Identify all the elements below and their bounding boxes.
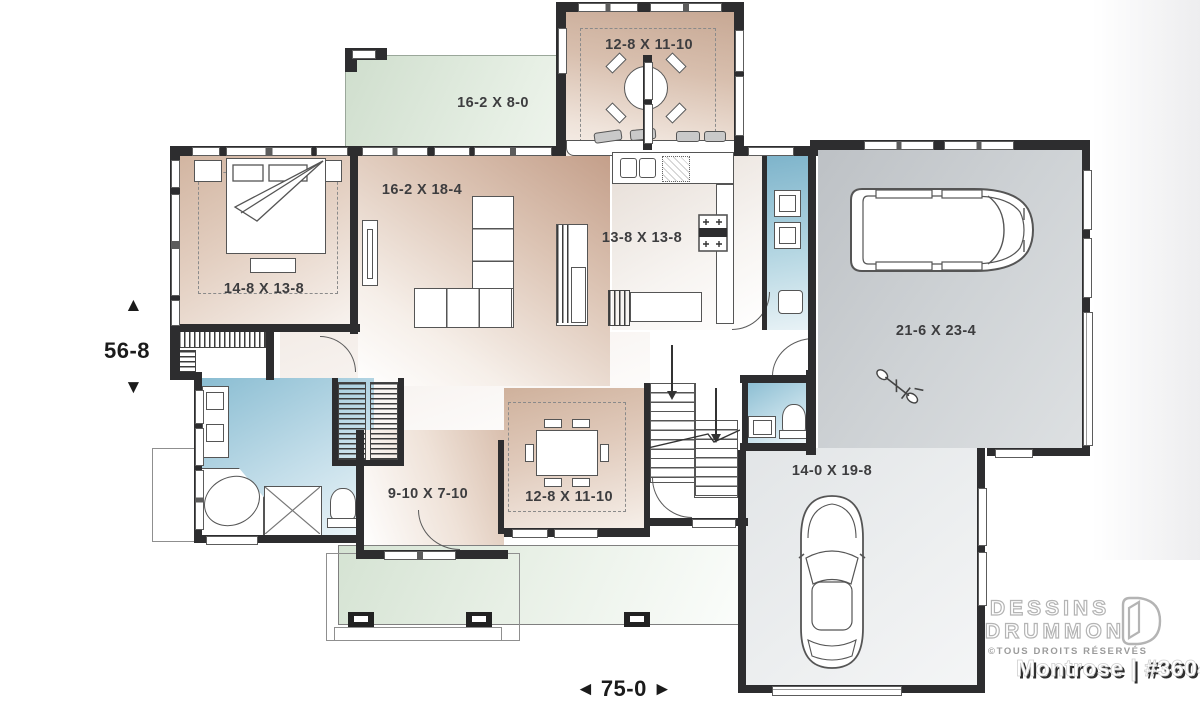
chair xyxy=(600,444,609,462)
brand-name-line2: DRUMMOND xyxy=(985,620,1110,644)
shower xyxy=(264,486,322,536)
arrow-up-icon: ▲ xyxy=(124,296,143,315)
porch-column-cap xyxy=(354,616,368,622)
kitchen-label: 13-8 X 13-8 xyxy=(602,230,682,246)
window xyxy=(192,147,220,156)
living-label: 16-2 X 18-4 xyxy=(382,182,462,198)
window xyxy=(1083,170,1092,230)
bar-stool xyxy=(704,131,726,142)
stairs-arrow-head xyxy=(667,391,677,400)
shower-glass xyxy=(265,487,320,534)
window xyxy=(995,449,1033,458)
plan-title: Montrose | #3604 xyxy=(1016,655,1200,682)
bed xyxy=(226,158,326,254)
chair xyxy=(572,478,590,487)
washer-door xyxy=(779,195,796,212)
fireplace xyxy=(362,220,378,286)
porch-steps xyxy=(334,627,502,641)
garage-door xyxy=(1083,312,1093,446)
sofa-seat xyxy=(414,288,514,328)
arrow-down-icon: ▼ xyxy=(124,378,143,397)
porch-column xyxy=(466,612,492,627)
window xyxy=(512,529,548,538)
fireplace-inner xyxy=(367,229,373,279)
window xyxy=(362,147,428,156)
window xyxy=(735,30,744,72)
chair xyxy=(525,444,534,462)
chair xyxy=(572,419,590,428)
walkin-closet-rack xyxy=(370,382,398,460)
chair xyxy=(544,419,562,428)
window xyxy=(735,76,744,136)
window xyxy=(226,147,312,156)
window xyxy=(554,529,598,538)
bath-sink xyxy=(206,424,224,442)
wall-segment xyxy=(266,332,274,380)
drummond-door-logo-icon xyxy=(1118,594,1162,648)
window xyxy=(474,147,552,156)
deck-label: 16-2 X 8-0 xyxy=(457,95,529,111)
wall-segment xyxy=(332,378,338,464)
wall-segment xyxy=(742,383,748,449)
bedroom-closet-rack xyxy=(178,330,266,348)
laundry-sink xyxy=(778,290,803,314)
window xyxy=(171,300,180,326)
window xyxy=(650,3,722,12)
arrow-right-icon: ► xyxy=(653,680,672,699)
window xyxy=(978,552,987,606)
dryer xyxy=(774,222,801,249)
island-stools xyxy=(608,290,630,326)
dishwasher xyxy=(662,156,690,182)
tv-unit xyxy=(556,224,588,326)
dining-label: 12-8 X 11-10 xyxy=(525,489,613,505)
wall-segment xyxy=(398,378,404,464)
den-label: 9-10 X 7-10 xyxy=(388,486,468,502)
powder-vanity xyxy=(748,416,776,438)
porch-column-cap xyxy=(472,616,486,622)
window xyxy=(384,551,456,560)
tv-unit-cabinet xyxy=(571,267,586,323)
nook-label: 12-8 X 11-10 xyxy=(605,37,693,53)
window xyxy=(644,62,653,100)
window xyxy=(578,3,638,12)
car xyxy=(792,494,872,670)
arrow-left-icon: ◄ xyxy=(576,680,595,699)
brand-name-line1: DESSINS xyxy=(990,597,1110,621)
bed-detail xyxy=(227,159,327,255)
window xyxy=(644,104,653,144)
window xyxy=(195,470,204,530)
wall-segment xyxy=(762,156,767,330)
bedroom-label: 14-8 X 13-8 xyxy=(224,281,304,297)
powder-sink xyxy=(753,420,772,435)
porch-column xyxy=(624,612,650,627)
wall-segment xyxy=(498,440,504,534)
porch-column xyxy=(348,612,374,627)
width-dimension: 75-0 xyxy=(601,676,647,702)
nightstand xyxy=(194,160,222,182)
porch-column-cap xyxy=(630,616,644,622)
wall-segment xyxy=(644,383,650,528)
wall-segment xyxy=(738,450,746,691)
window xyxy=(195,390,204,424)
bar-stool xyxy=(676,131,700,142)
stairs-arrow xyxy=(715,388,717,436)
garage-door xyxy=(772,686,902,696)
washer xyxy=(774,190,801,217)
garage-label: 21-6 X 23-4 xyxy=(896,323,976,339)
bay-window-footing xyxy=(152,448,200,542)
window xyxy=(1083,238,1092,298)
toilet-tank xyxy=(327,518,357,528)
chair xyxy=(544,478,562,487)
garage-bay-label: 14-0 X 19-8 xyxy=(792,463,872,479)
window xyxy=(692,519,736,528)
stairs-break-line xyxy=(648,428,740,450)
toilet xyxy=(330,488,356,520)
stairs-arrow-head xyxy=(711,434,721,443)
window xyxy=(978,488,987,546)
window xyxy=(316,147,348,156)
wall-segment xyxy=(170,324,360,332)
wall-segment xyxy=(740,443,816,451)
wall-segment xyxy=(356,430,364,554)
dryer-door xyxy=(779,227,796,244)
window xyxy=(206,536,258,545)
toilet-tank xyxy=(779,430,807,439)
van xyxy=(848,186,1038,274)
depth-dimension: 56-8 xyxy=(104,338,150,364)
bath-sink xyxy=(206,392,224,410)
motorcycle xyxy=(868,362,928,412)
dining-table xyxy=(536,430,598,476)
wall-segment xyxy=(808,150,816,455)
page-shading xyxy=(1092,0,1200,560)
width-dimension-group: ◄ 75-0 ► xyxy=(576,676,672,702)
kitchen-sink xyxy=(620,158,637,178)
tv-unit-shelves xyxy=(557,225,569,323)
window xyxy=(171,194,180,296)
wall-segment xyxy=(350,146,358,334)
window xyxy=(944,141,1014,150)
window xyxy=(171,160,180,188)
window xyxy=(748,147,794,156)
window xyxy=(352,50,376,59)
wall-segment xyxy=(740,375,814,383)
window xyxy=(864,141,934,150)
bed-bench xyxy=(250,258,296,273)
kitchen-sink xyxy=(639,158,656,178)
stove xyxy=(698,214,728,252)
floor-plan-canvas: 16-2 X 8-0 12-8 X 11-10 16-2 X 18-4 13-8… xyxy=(0,0,1200,711)
wall-segment xyxy=(332,460,404,466)
window xyxy=(558,28,567,74)
window xyxy=(434,147,470,156)
kitchen-island xyxy=(630,292,702,322)
window xyxy=(195,428,204,466)
front-door-arc xyxy=(652,478,692,518)
stairs-arrow xyxy=(671,345,673,393)
